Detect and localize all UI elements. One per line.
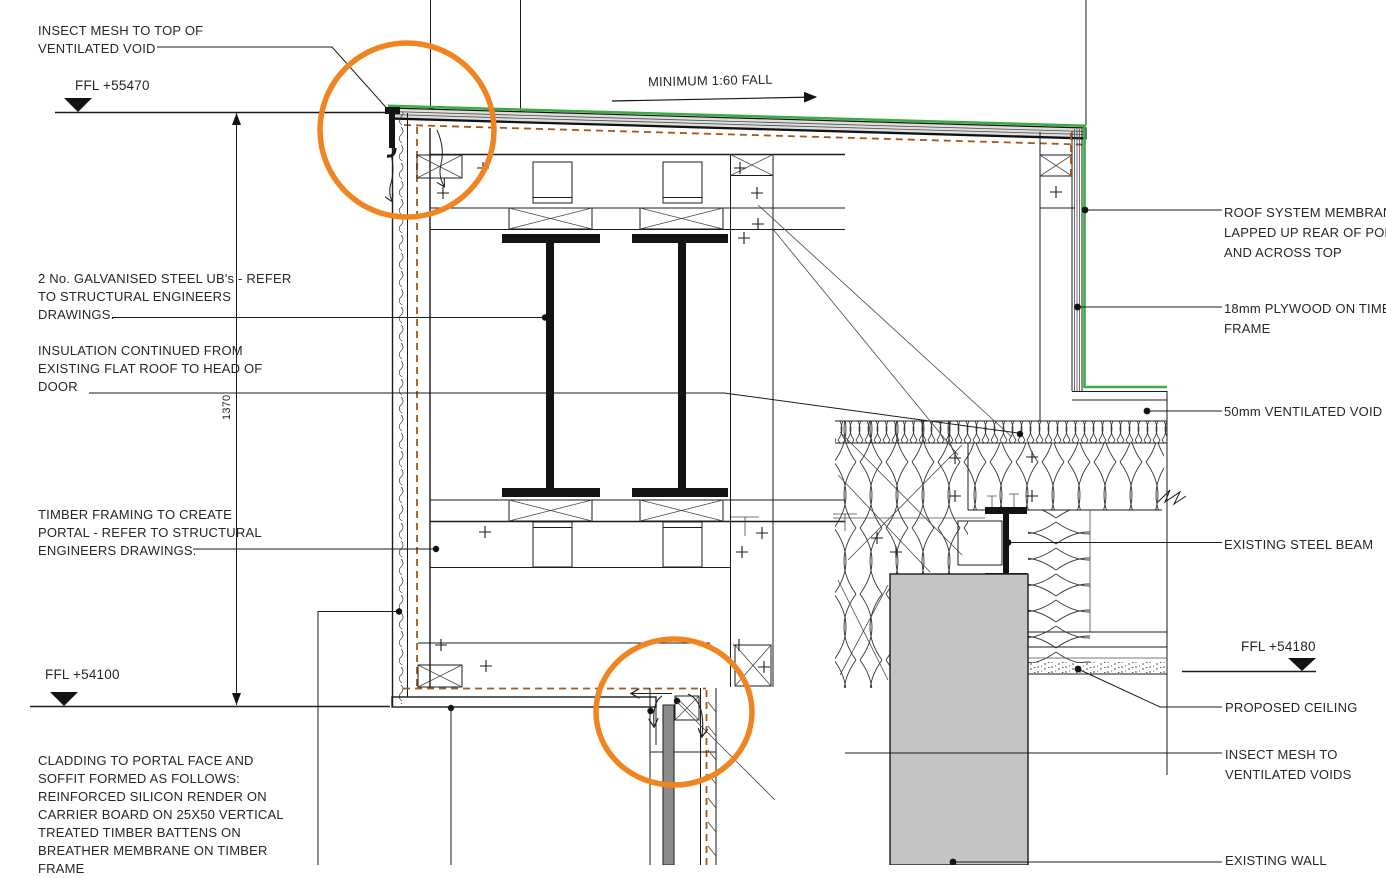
leader-proposed-ceiling bbox=[1078, 669, 1222, 707]
label-ffl-55470: FFL +55470 bbox=[75, 77, 150, 95]
top-leader-lines bbox=[428, 0, 1086, 125]
left-wall bbox=[393, 110, 431, 707]
render-hatch bbox=[394, 112, 407, 704]
label-ffl-54180: FFL +54180 bbox=[1241, 638, 1316, 656]
label-insulation-continued: INSULATION CONTINUED FROM EXISTING FLAT … bbox=[38, 342, 262, 396]
label-existing-wall: EXISTING WALL bbox=[1225, 852, 1327, 870]
label-ventilated-void: 50mm VENTILATED VOID bbox=[1224, 403, 1382, 421]
label-proposed-ceiling: PROPOSED CEILING bbox=[1225, 699, 1358, 717]
label-timber-framing: TIMBER FRAMING TO CREATE PORTAL - REFER … bbox=[38, 506, 262, 560]
insulation-quilt bbox=[835, 421, 968, 574]
ceiling-board bbox=[1028, 662, 1167, 673]
insulation-large-row bbox=[968, 443, 1164, 510]
timber-noggins bbox=[533, 162, 702, 567]
label-insect-mesh-voids: INSECT MESH TO VENTILATED VOIDS bbox=[1225, 745, 1351, 785]
insulation-vertical-strip bbox=[1028, 510, 1090, 663]
leader-cladding-1 bbox=[318, 612, 397, 866]
label-roof-membrane: ROOF SYSTEM MEMBRANE LAPPED UP REAR OF P… bbox=[1224, 203, 1386, 263]
datum-triangle-54100 bbox=[50, 692, 78, 706]
label-ffl-54100: FFL +54100 bbox=[45, 666, 120, 684]
door-head bbox=[392, 688, 775, 865]
portal-frame bbox=[417, 154, 857, 687]
label-existing-steel-beam: EXISTING STEEL BEAM bbox=[1224, 536, 1373, 554]
steel-ub-beams bbox=[502, 234, 728, 497]
existing-wall-section bbox=[890, 574, 1028, 865]
fall-arrow bbox=[612, 97, 816, 101]
datum-triangle-55470 bbox=[64, 98, 92, 112]
datum-triangle-54180 bbox=[1288, 658, 1316, 671]
label-cladding: CLADDING TO PORTAL FACE AND SOFFIT FORME… bbox=[38, 752, 284, 878]
dimension-1370 bbox=[232, 113, 241, 705]
label-plywood: 18mm PLYWOOD ON TIMBER FRAME bbox=[1224, 299, 1386, 339]
label-galvanised-ubs: 2 No. GALVANISED STEEL UB's - REFER TO S… bbox=[38, 270, 291, 324]
label-minimum-fall: MINIMUM 1:60 FALL bbox=[648, 71, 773, 92]
label-insect-mesh-top: INSECT MESH TO TOP OF VENTILATED VOID bbox=[38, 22, 203, 58]
label-dim-1370: 1370 bbox=[221, 395, 233, 420]
section-drawing bbox=[0, 0, 1386, 865]
soffit-board bbox=[392, 697, 656, 707]
construction-detail-drawing: { "colors": { "highlight": "#f08421", "m… bbox=[0, 0, 1386, 865]
